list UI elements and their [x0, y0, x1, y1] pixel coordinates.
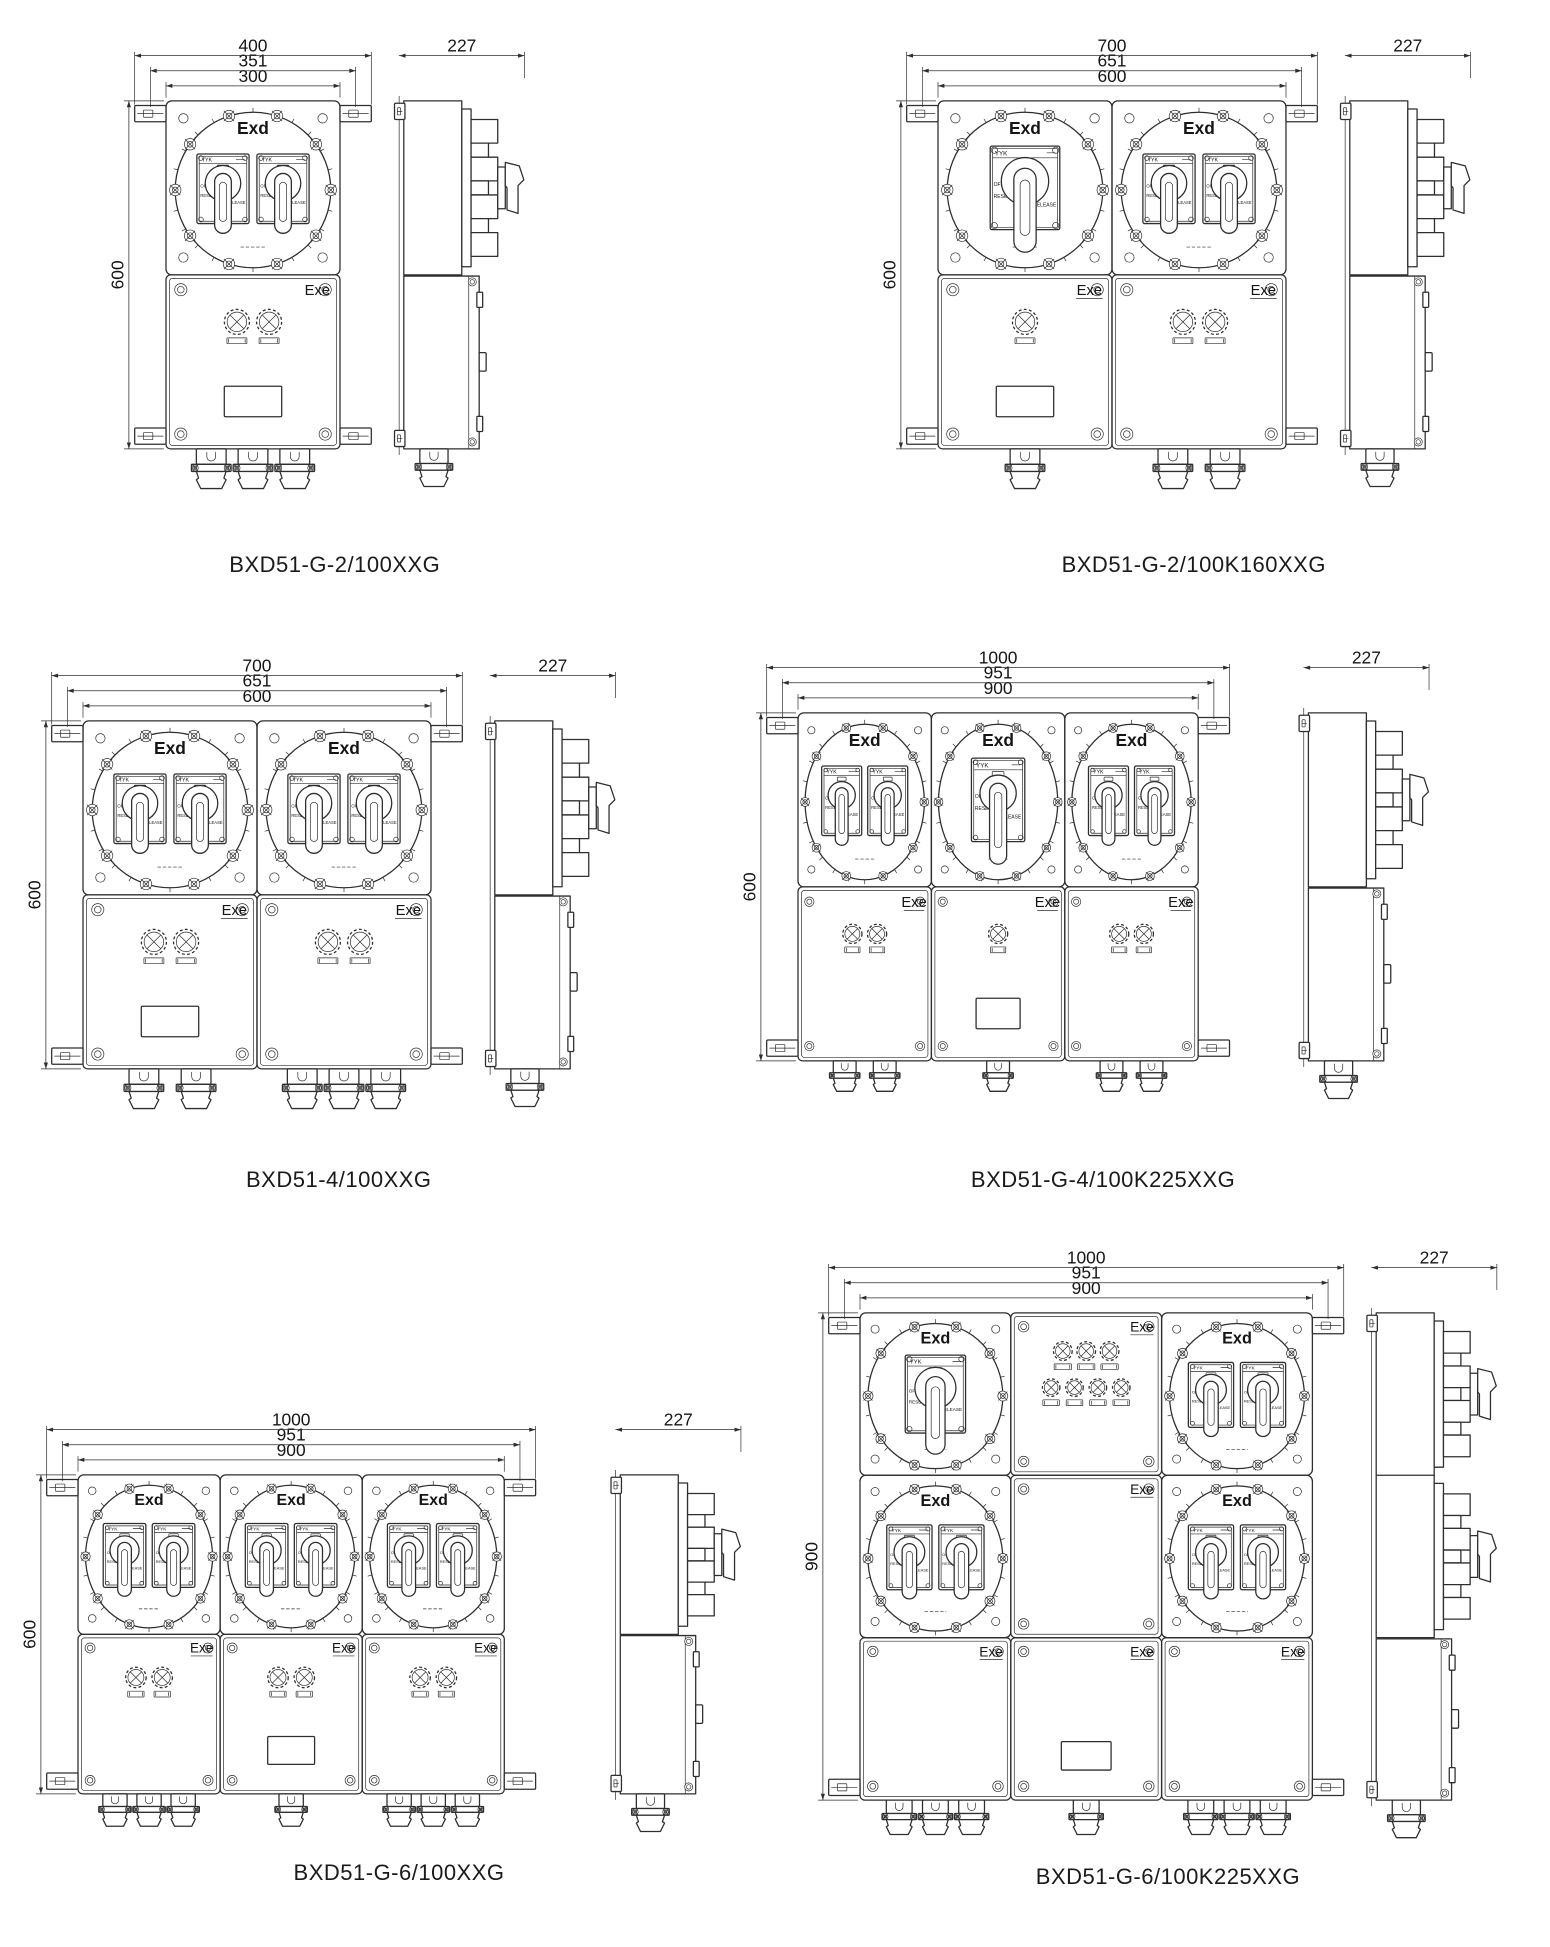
svg-text:227: 227 [1352, 648, 1381, 668]
screw-icon [401, 850, 412, 861]
svg-text:Exe: Exe [1130, 1644, 1154, 1659]
side-view [1372, 1308, 1497, 1837]
dimension-h-227: 227 [399, 36, 524, 58]
cable-gland [870, 1061, 900, 1091]
screw-icon [399, 1085, 405, 1091]
switch-unit: YYKOFFRESETRELEASE [294, 1524, 337, 1597]
technical-drawing: ExdYYKOFFRESETRELEASEYYKOFFRESETRELEASEE… [20, 1414, 778, 1852]
mounting-lug [611, 1477, 621, 1493]
mounting-lug [47, 1773, 78, 1789]
cable-gland [829, 1061, 859, 1091]
bolt-icon [345, 1775, 355, 1785]
screw-icon [1419, 1815, 1425, 1821]
screw-icon [855, 1073, 860, 1078]
svg-text:Exe: Exe [1035, 895, 1060, 911]
screw-icon [998, 1391, 1008, 1401]
screw-icon [86, 804, 97, 815]
indicator-lamp-icon [224, 309, 249, 343]
screw-icon [93, 1594, 102, 1603]
screw-icon [1175, 752, 1184, 761]
svg-text:700: 700 [242, 656, 271, 676]
screw-icon [1177, 1596, 1187, 1606]
screw-icon [920, 798, 929, 807]
screw-icon [1130, 139, 1141, 150]
screw-icon [478, 1807, 483, 1812]
screw-icon [812, 843, 821, 852]
cable-gland [133, 1794, 165, 1826]
bolt-icon [1144, 1619, 1155, 1630]
cable-gland [417, 1794, 449, 1826]
screw-icon [1079, 752, 1088, 761]
screw-icon [1177, 1511, 1187, 1521]
mounting-lug [1367, 1782, 1377, 1798]
svg-text:227: 227 [538, 656, 567, 676]
screw-icon [235, 1510, 244, 1519]
svg-text:Exd: Exd [237, 118, 269, 138]
screw-icon [1211, 1623, 1221, 1633]
exd-module: ExdYYKOFFRESETRELEASEYYKOFFRESETRELEASE [798, 713, 931, 887]
screw-icon [1043, 110, 1054, 121]
screw-icon [306, 1620, 315, 1629]
svg-text:400: 400 [238, 36, 267, 56]
screw-icon [983, 1814, 988, 1819]
screw-icon [1042, 752, 1051, 761]
switch-unit: YYKOFFRESETRELEASE [174, 774, 226, 853]
screw-icon [184, 139, 195, 150]
technical-drawing-svg: ExdYYKOFFRESETRELEASEExeExdYYKOFFRESETRE… [802, 1252, 1534, 1858]
indicator-lamp-icon [315, 929, 340, 963]
exd-module: ExdYYKOFFRESETRELEASEYYKOFFRESETRELEASE [1162, 1475, 1313, 1637]
screw-icon [1256, 139, 1267, 150]
svg-text:Exe: Exe [1130, 1320, 1154, 1335]
screw-icon [1097, 184, 1108, 195]
switch-unit: YYKOFFRESETRELEASE [348, 774, 400, 853]
screw-icon [367, 1085, 373, 1091]
screw-icon [1109, 872, 1118, 881]
switch-unit: YYKOFFRESETRELEASE [1203, 154, 1255, 233]
cable-gland [451, 1794, 483, 1826]
figure-bxd51-g-2-100k160xxg: ExdYYKOFFRESETRELEASEExdYYKOFFRESETRELEA… [880, 40, 1508, 578]
mounting-lug [340, 428, 371, 444]
screw-icon [951, 1322, 961, 1332]
exd-module: ExdYYKOFFRESETRELEASEYYKOFFRESETRELEASE [1112, 101, 1286, 275]
screw-icon [1169, 258, 1180, 269]
screw-icon [876, 1511, 886, 1521]
switch-unit: YYKOFFRESETRELEASE [245, 1524, 288, 1597]
screw-icon [234, 465, 240, 471]
switch-unit: YYKOFFRESETRELEASE [114, 774, 166, 853]
screw-icon [169, 184, 180, 195]
mounting-lug [1198, 1040, 1229, 1056]
cable-gland [275, 1794, 307, 1826]
bolt-icon [1018, 1456, 1029, 1467]
bolt-icon [175, 284, 187, 296]
svg-text:600: 600 [880, 260, 900, 289]
bolt-icon [1144, 1781, 1155, 1792]
switch-unit: YYKOFFRESETRELEASE [1143, 154, 1195, 233]
mounting-lug [1312, 1318, 1343, 1334]
mounting-lug [47, 1480, 78, 1496]
mounting-lug [907, 106, 938, 122]
screw-icon [1169, 110, 1180, 121]
bolt-icon [1091, 428, 1103, 440]
screw-icon [223, 258, 234, 269]
screw-icon [1253, 1460, 1263, 1470]
svg-text:600: 600 [108, 260, 128, 289]
screw-icon [1146, 872, 1155, 881]
screw-icon [945, 752, 954, 761]
bolt-icon [1049, 1041, 1058, 1050]
exe-module: Exe [1011, 1313, 1162, 1475]
indicator-lamp-icon [1053, 1342, 1072, 1370]
bolt-icon [938, 897, 947, 906]
exd-module: ExdYYKOFFRESETRELEASEYYKOFFRESETRELEASE [860, 1475, 1011, 1637]
svg-text:700: 700 [1097, 36, 1126, 56]
screw-icon [338, 1510, 347, 1519]
screw-icon [1097, 1814, 1102, 1819]
screw-icon [1082, 139, 1093, 150]
cable-gland [1256, 1800, 1290, 1834]
screw-icon [223, 1552, 232, 1561]
screw-icon [260, 804, 271, 815]
screw-icon [242, 804, 253, 815]
cable-gland [1388, 1800, 1426, 1838]
bolt-icon [1144, 1456, 1155, 1467]
screw-icon [934, 798, 943, 807]
dimension-v-600: 600 [20, 1475, 43, 1794]
dimension-h-400: 400 [135, 36, 372, 58]
screw-icon [184, 230, 195, 241]
bolt-icon [1018, 1321, 1029, 1332]
screw-icon [1321, 1076, 1327, 1082]
cable-gland [1153, 449, 1193, 489]
screw-icon [1388, 1815, 1394, 1821]
screw-icon [909, 843, 918, 852]
switch-unit: YYKOFFRESETRELEASE [822, 766, 862, 845]
bolt-icon [1018, 1484, 1029, 1495]
screw-icon [310, 139, 321, 150]
screw-icon [306, 1484, 315, 1493]
bolt-icon [947, 428, 959, 440]
cable-gland [1320, 1061, 1358, 1099]
svg-text:Exd: Exd [921, 1492, 951, 1510]
svg-text:Exe: Exe [901, 895, 926, 911]
svg-text:900: 900 [802, 1542, 822, 1571]
screw-icon [863, 1391, 873, 1401]
switch-unit: YYKOFFRESETRELEASE [1188, 1525, 1233, 1599]
screw-icon [910, 1814, 915, 1819]
mounting-lug [135, 106, 166, 122]
screw-icon [1012, 872, 1021, 881]
screw-icon [1253, 1623, 1263, 1633]
exe-module: Exe [860, 1638, 1011, 1800]
mounting-lug [504, 1773, 535, 1789]
bolt-icon [1071, 897, 1080, 906]
dimension-v-600: 600 [740, 713, 763, 1061]
bolt-icon [947, 284, 959, 296]
exd-module: ExdYYKOFFRESETRELEASEYYKOFFRESETRELEASE [220, 1475, 362, 1634]
screw-icon [1253, 1322, 1263, 1332]
screw-icon [985, 1596, 995, 1606]
cable-gland [506, 1069, 544, 1107]
exe-module: Exe [78, 1634, 220, 1793]
screw-icon [410, 1807, 415, 1812]
screw-icon [160, 1807, 165, 1812]
dimension-h-700: 700 [907, 36, 1318, 58]
cable-gland [1220, 1800, 1254, 1834]
mounting-lug [1198, 718, 1229, 734]
screw-icon [984, 1073, 989, 1078]
figure-caption: BXD51-G-4/100K225XXG [740, 1167, 1466, 1193]
screw-icon [418, 1807, 423, 1812]
svg-text:Exe: Exe [332, 1641, 355, 1656]
exe-module: Exe [166, 275, 340, 449]
nameplate [141, 1006, 198, 1036]
cable-gland [1205, 449, 1245, 489]
switch-unit: YYKOFFRESETRELEASE [197, 154, 249, 233]
mounting-lug [1286, 106, 1317, 122]
bolt-icon [1294, 1781, 1305, 1792]
switch-unit: YYKOFFRESETRELEASE [436, 1524, 479, 1597]
screw-icon [223, 110, 234, 121]
exd-module: ExdYYKOFFRESETRELEASE [931, 713, 1064, 887]
screw-icon [1212, 1814, 1217, 1819]
bolt-icon [1373, 1050, 1381, 1058]
screw-icon [452, 1807, 457, 1812]
svg-text:Exd: Exd [982, 730, 1014, 750]
screw-icon [1053, 798, 1062, 807]
side-view [490, 716, 615, 1106]
svg-text:Exd: Exd [1116, 730, 1148, 750]
screw-icon [1271, 184, 1282, 195]
cable-gland [233, 449, 273, 489]
indicator-lamp-icon [1113, 1379, 1130, 1406]
svg-text:227: 227 [664, 1410, 693, 1430]
screw-icon [365, 1552, 374, 1561]
svg-text:1000: 1000 [1067, 1248, 1106, 1268]
bolt-icon [369, 1775, 379, 1785]
svg-text:Exe: Exe [305, 283, 330, 299]
technical-drawing-svg: ExdYYKOFFRESETRELEASEYYKOFFRESETRELEASEE… [25, 660, 653, 1127]
screw-icon [1287, 1596, 1297, 1606]
screw-icon [910, 1623, 920, 1633]
bolt-icon [410, 1048, 422, 1060]
screw-icon [975, 872, 984, 881]
technical-drawing-svg: ExdYYKOFFRESETRELEASEYYKOFFRESETRELEASEE… [108, 40, 562, 507]
screw-icon [956, 230, 967, 241]
mounting-lug [135, 428, 166, 444]
svg-text:Exd: Exd [328, 738, 360, 758]
bolt-icon [559, 898, 567, 906]
svg-text:227: 227 [1393, 36, 1422, 56]
screw-icon [1115, 184, 1126, 195]
screw-icon [995, 258, 1006, 269]
screw-icon [1211, 1322, 1221, 1332]
bolt-icon [993, 1781, 1004, 1792]
svg-text:Exe: Exe [190, 1641, 213, 1656]
screw-icon [134, 1807, 139, 1812]
technical-drawing: ExdYYKOFFRESETRELEASEYYKOFFRESETRELEASEE… [108, 40, 562, 507]
screw-icon [1042, 843, 1051, 852]
switch-unit: YYKOFFRESETRELEASE [387, 1524, 430, 1597]
screw-icon [409, 1620, 418, 1629]
drawing-sheet: ExdYYKOFFRESETRELEASEYYKOFFRESETRELEASEE… [0, 0, 1550, 1947]
cable-gland [366, 1069, 406, 1109]
svg-text:YYK: YYK [1093, 770, 1104, 776]
front-view: ExdYYKOFFRESETRELEASEYYKOFFRESETRELEASEE… [135, 101, 372, 489]
dimension-v-600: 600 [108, 101, 131, 449]
exe-module: Exe [1112, 275, 1286, 449]
screw-icon [1287, 1434, 1297, 1444]
nameplate [996, 386, 1053, 416]
exe-module: Exe [220, 1634, 362, 1793]
indicator-lamp-icon [174, 929, 199, 963]
mounting-lug [1312, 1779, 1343, 1795]
screw-icon [1082, 230, 1093, 241]
screw-icon [208, 1552, 217, 1561]
bolt-icon [1071, 1041, 1080, 1050]
exd-module: ExdYYKOFFRESETRELEASEYYKOFFRESETRELEASE [166, 101, 340, 275]
screw-icon [1287, 1511, 1297, 1521]
mounting-lug [395, 103, 405, 119]
exe-module: Exe [1162, 1638, 1313, 1800]
side-view [1304, 708, 1429, 1098]
screw-icon [537, 1084, 543, 1090]
switch-unit: YYKOFFRESETRELEASE [288, 774, 340, 853]
svg-text:RELEASE: RELEASE [1033, 202, 1057, 208]
side-handle [589, 782, 615, 833]
cable-gland [983, 1061, 1013, 1091]
screw-icon [157, 1085, 163, 1091]
bolt-icon [1018, 1781, 1029, 1792]
exe-module: Exe [798, 887, 931, 1061]
screw-icon [314, 878, 325, 889]
svg-text:Exe: Exe [1251, 283, 1276, 299]
cable-gland [1184, 1800, 1218, 1834]
screw-icon [1187, 798, 1196, 807]
screw-icon [308, 465, 314, 471]
screw-icon [125, 1620, 134, 1629]
bolt-icon [1018, 1619, 1029, 1630]
dimension-h-227: 227 [1372, 1248, 1497, 1270]
bolt-icon [92, 904, 104, 916]
cable-gland [324, 1069, 364, 1109]
technical-drawing-svg: ExdYYKOFFRESETRELEASEExdYYKOFFRESETRELEA… [880, 40, 1508, 507]
switch-unit: YYKOFFRESETRELEASE [1134, 766, 1174, 845]
exd-module: ExdYYKOFFRESETRELEASEYYKOFFRESETRELEASE [1162, 1313, 1313, 1475]
screw-icon [985, 1511, 995, 1521]
screw-icon [883, 1814, 888, 1819]
screw-icon [876, 1348, 886, 1358]
bolt-icon [1121, 428, 1133, 440]
figure-caption: BXD51-4/100XXG [25, 1167, 653, 1193]
screw-icon [1121, 1073, 1126, 1078]
bolt-icon [1441, 1641, 1449, 1649]
screw-icon [1256, 230, 1267, 241]
screw-icon [267, 1620, 276, 1629]
screw-icon [188, 730, 199, 741]
technical-drawing: ExdYYKOFFRESETRELEASEExdYYKOFFRESETRELEA… [880, 40, 1508, 507]
mounting-lug [52, 726, 83, 742]
side-handle [1402, 774, 1428, 825]
mounting-lug [486, 1050, 496, 1066]
screw-icon [998, 1553, 1008, 1563]
technical-drawing: ExdYYKOFFRESETRELEASEYYKOFFRESETRELEASEE… [25, 660, 653, 1127]
figure-caption: BXD51-G-2/100K160XXG [880, 552, 1508, 578]
svg-text:Exd: Exd [1222, 1330, 1252, 1348]
switch-unit: YYKOFFRESETRELEASE [1240, 1362, 1285, 1436]
screw-icon [164, 1484, 173, 1493]
screw-icon [177, 1085, 183, 1091]
mounting-lug [1367, 1315, 1377, 1331]
indicator-lamp-icon [436, 1667, 456, 1697]
exd-module: ExdYYKOFFRESETRELEASEYYKOFFRESETRELEASE [78, 1475, 220, 1634]
mounting-lug [340, 106, 371, 122]
front-view: ExdYYKOFFRESETRELEASEYYKOFFRESETRELEASEE… [47, 1475, 536, 1826]
mounting-lug [504, 1480, 535, 1496]
screw-icon [101, 850, 112, 861]
bolt-icon [468, 438, 476, 446]
cable-gland [275, 449, 315, 489]
screw-icon [1175, 843, 1184, 852]
bolt-icon [85, 1643, 95, 1653]
indicator-lamp-icon [1077, 1342, 1096, 1370]
svg-text:1000: 1000 [272, 1410, 311, 1430]
cable-gland [1069, 1800, 1103, 1834]
screw-icon [632, 1809, 638, 1815]
mounting-lug [1341, 430, 1351, 446]
screw-icon [910, 1322, 920, 1332]
screw-icon [192, 465, 198, 471]
indicator-lamp-icon [1134, 924, 1153, 952]
screw-icon [995, 110, 1006, 121]
screw-icon [1362, 464, 1368, 470]
screw-icon [1186, 465, 1192, 471]
screw-icon [384, 1807, 389, 1812]
screw-icon [1137, 1073, 1142, 1078]
screw-icon [168, 1807, 173, 1812]
screw-icon [275, 850, 286, 861]
screw-icon [315, 1085, 321, 1091]
screw-icon [1253, 1484, 1263, 1494]
cable-gland [632, 1794, 670, 1832]
indicator-lamp-icon [1089, 1379, 1106, 1406]
mounting-lug [829, 1779, 860, 1795]
screw-icon [164, 1620, 173, 1629]
bolt-icon [915, 1041, 924, 1050]
svg-text:YYK: YYK [1139, 770, 1150, 776]
screw-icon [416, 464, 422, 470]
cable-gland [1136, 1061, 1166, 1091]
screw-icon [1006, 465, 1012, 471]
mounting-lug [1341, 103, 1351, 119]
indicator-lamp-icon [268, 1667, 288, 1697]
figure-caption: BXD51-G-6/100K225XXG [802, 1864, 1534, 1890]
exd-module: ExdYYKOFFRESETRELEASEYYKOFFRESETRELEASE [1065, 713, 1198, 887]
screw-icon [985, 1348, 995, 1358]
technical-drawing-svg: ExdYYKOFFRESETRELEASEYYKOFFRESETRELEASEE… [20, 1414, 778, 1852]
bolt-icon [868, 1646, 879, 1657]
bolt-icon [203, 1775, 213, 1785]
cable-gland [1361, 449, 1399, 487]
figure-bxd51-g-6-100k225xxg: ExdYYKOFFRESETRELEASEExeExdYYKOFFRESETRE… [802, 1252, 1534, 1890]
screw-icon [1238, 465, 1244, 471]
screw-icon [276, 1807, 281, 1812]
nameplate [1061, 1742, 1111, 1770]
screw-icon [224, 465, 230, 471]
screw-icon [188, 878, 199, 889]
side-view [1345, 96, 1470, 486]
